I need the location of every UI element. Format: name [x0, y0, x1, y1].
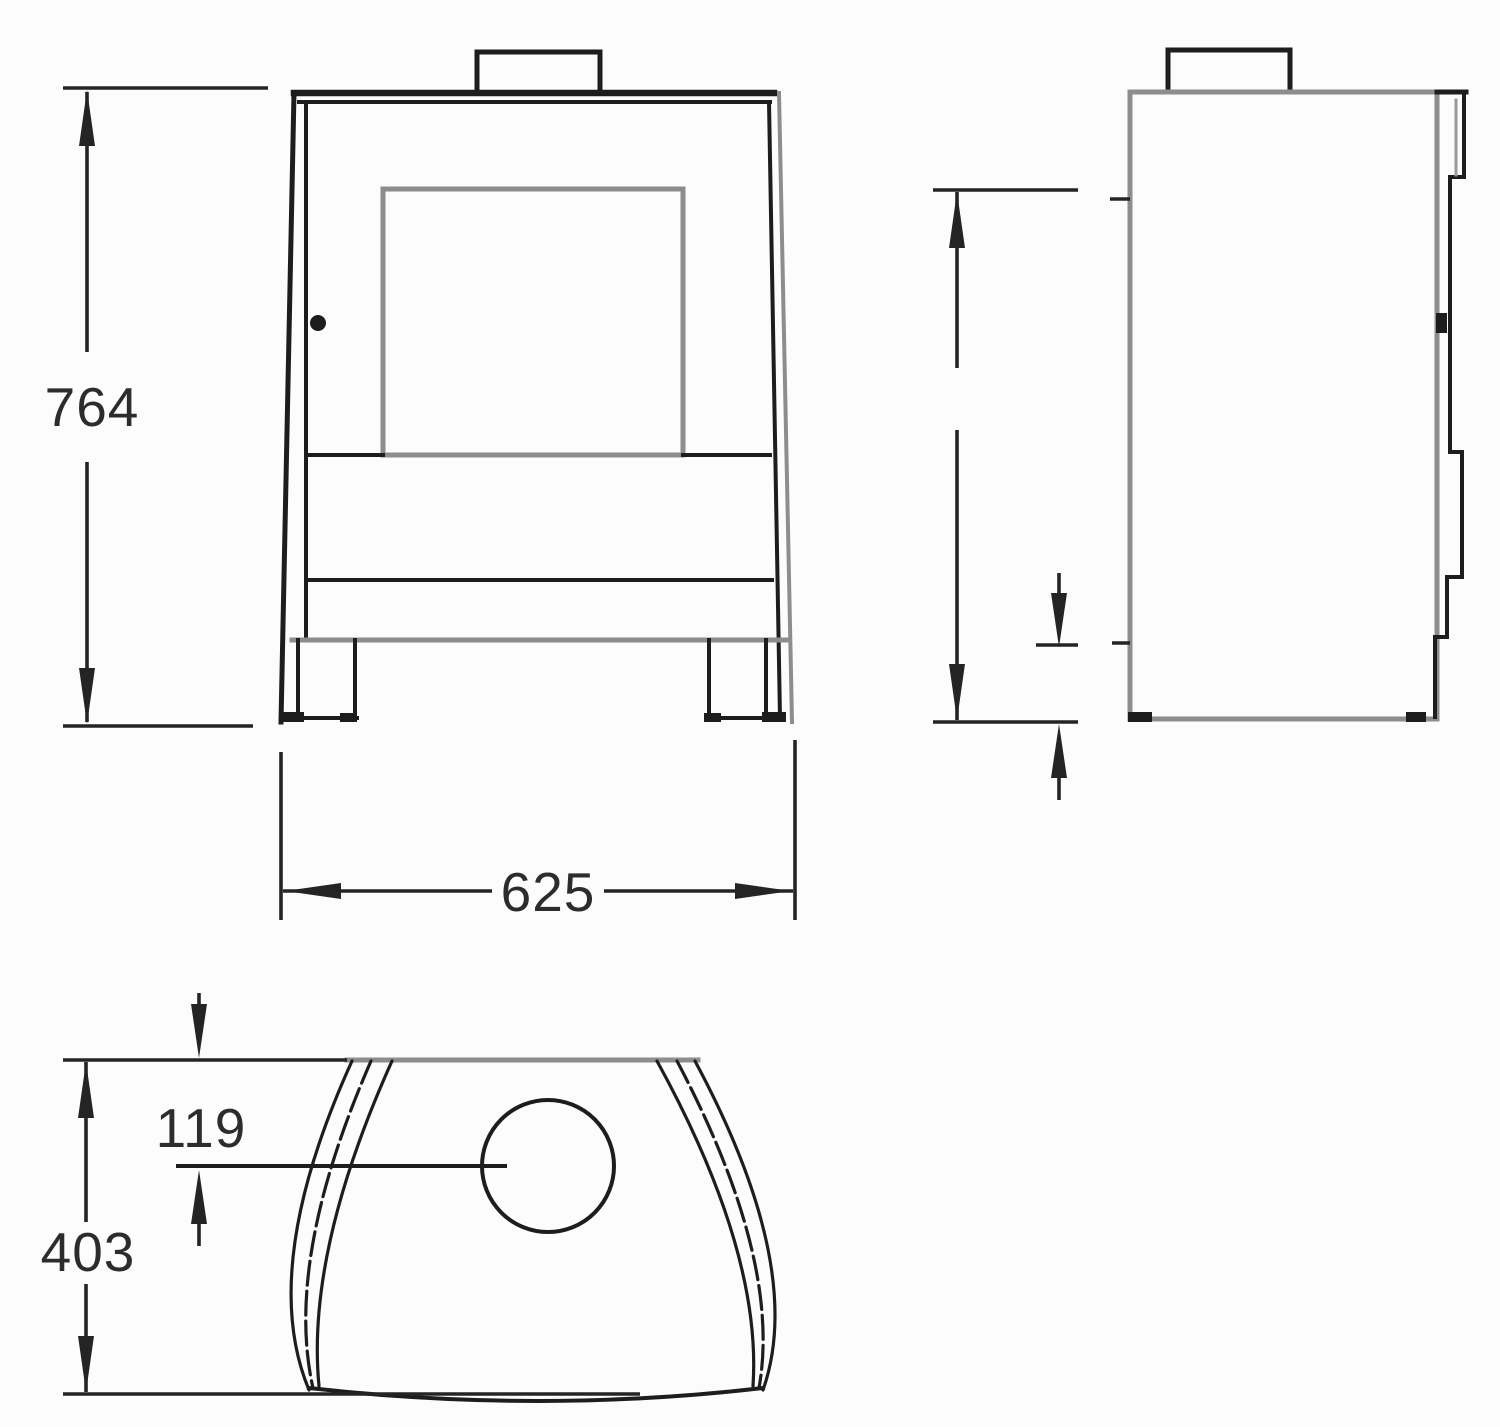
front-left-edge [281, 93, 294, 722]
side-dimension-lower [1036, 573, 1078, 800]
dimension-flue-offset-label: 119 [156, 1097, 247, 1159]
front-top-plate [294, 93, 774, 102]
side-hinge [1436, 313, 1447, 333]
front-feet [280, 640, 786, 722]
bottom-view [178, 1060, 775, 1401]
side-handle [1168, 50, 1290, 90]
bottom-left-side-panel [291, 1061, 392, 1390]
dimension-depth: 403 [41, 1060, 640, 1394]
front-right-edge [779, 93, 792, 722]
dimension-flue-offset: 119 [156, 993, 247, 1246]
front-door-right-edge [769, 102, 780, 718]
front-panel-lines [292, 455, 787, 640]
dimension-width: 625 [281, 740, 795, 923]
dimension-width-label: 625 [501, 861, 596, 923]
dimension-depth-label: 403 [41, 1221, 136, 1283]
dimension-height-label: 764 [45, 376, 140, 438]
front-handle [477, 52, 600, 90]
dimension-drawing: 764 625 [0, 0, 1500, 1427]
front-view [280, 52, 792, 722]
side-view [1110, 50, 1466, 722]
front-door-window [383, 189, 683, 455]
front-hinge-dot [310, 315, 326, 331]
side-reference-ticks [1110, 199, 1130, 643]
side-dimension-upper [933, 190, 1078, 722]
side-body [1130, 92, 1437, 719]
dimension-height: 764 [45, 88, 268, 726]
bottom-right-side-panel [657, 1061, 775, 1390]
